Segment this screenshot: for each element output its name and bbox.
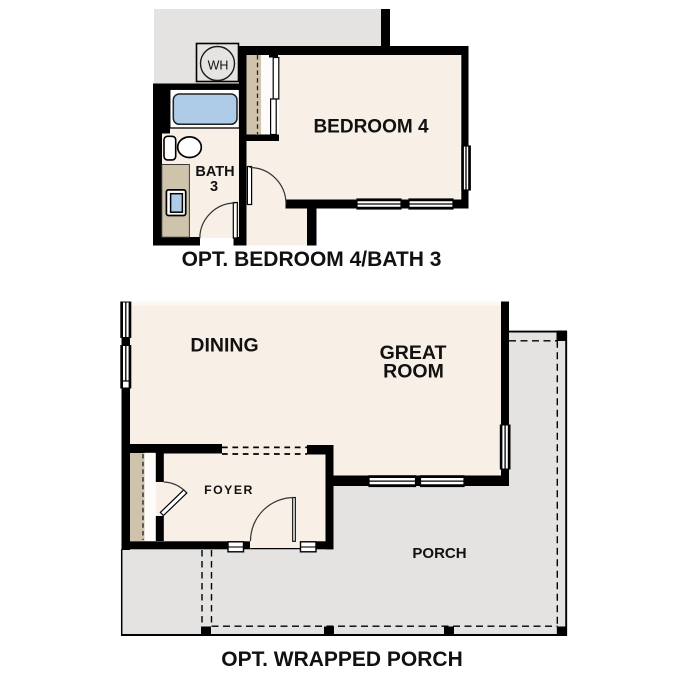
svg-text:3: 3 bbox=[210, 179, 218, 195]
svg-text:FOYER: FOYER bbox=[204, 483, 254, 497]
svg-text:DINING: DINING bbox=[190, 335, 258, 357]
svg-text:OPT. WRAPPED PORCH: OPT. WRAPPED PORCH bbox=[221, 648, 463, 671]
svg-text:PORCH: PORCH bbox=[412, 545, 466, 562]
svg-text:ROOM: ROOM bbox=[383, 361, 444, 383]
svg-text:WH: WH bbox=[208, 58, 229, 72]
svg-text:OPT. BEDROOM 4/BATH 3: OPT. BEDROOM 4/BATH 3 bbox=[182, 248, 442, 271]
svg-text:BATH: BATH bbox=[195, 164, 234, 180]
svg-text:BEDROOM 4: BEDROOM 4 bbox=[313, 117, 429, 138]
